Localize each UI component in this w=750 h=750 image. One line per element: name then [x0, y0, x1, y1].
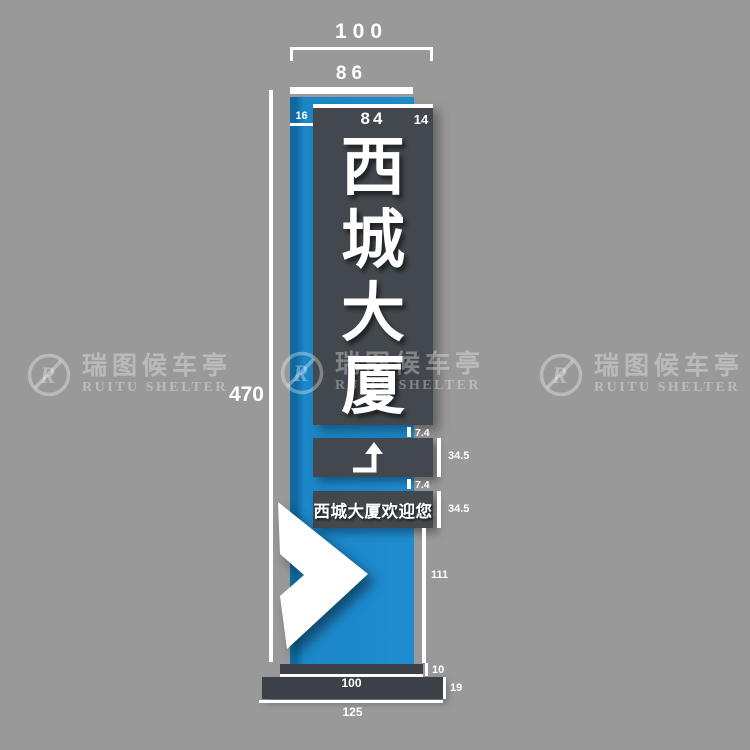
arrow-plaque: [313, 438, 433, 477]
pillar-cap-bar: [280, 664, 423, 674]
ruitu-logo-icon: R: [26, 352, 72, 398]
svg-text:R: R: [551, 363, 567, 388]
watermark: R 瑞图候车亭 RUITU SHELTER: [26, 352, 232, 398]
chevron-right-icon: [276, 494, 378, 656]
dim-label-lower-section-height: 111: [431, 569, 448, 581]
dim-label-welcome-plaque-height: 34.5: [448, 503, 469, 515]
dim-label-cap-height: 10: [432, 664, 444, 676]
title-char: 城: [341, 204, 405, 277]
watermark-en: RUITU SHELTER: [82, 380, 232, 396]
dim-label-base-width: 125: [262, 705, 443, 719]
watermark-text: 瑞图候车亭 RUITU SHELTER: [82, 354, 232, 396]
ruitu-logo-icon: R: [538, 352, 584, 398]
dim-label-cap-width: 100: [280, 676, 423, 690]
signage-design-canvas: 100 86 470 84 14 16 西 城 大 厦 7.4 34.5 7.4…: [0, 0, 750, 750]
title-char: 西: [341, 131, 405, 204]
ruitu-logo-icon: R: [279, 350, 325, 396]
dim-tick-gap-top: [407, 427, 411, 437]
dim-line-lower-section: [422, 528, 426, 663]
watermark-en: RUITU SHELTER: [594, 380, 744, 396]
dim-tick-cap-height: [425, 663, 428, 676]
dim-bracket-outer-width: [290, 47, 433, 61]
dim-tick-gap-bottom: [407, 479, 411, 489]
watermark-text: 瑞图候车亭 RUITU SHELTER: [335, 352, 485, 394]
dim-label-outer-width: 100: [290, 20, 433, 44]
watermark-en: RUITU SHELTER: [335, 378, 485, 394]
dim-line-total-height: [269, 90, 273, 662]
watermark-text: 瑞图候车亭 RUITU SHELTER: [594, 354, 744, 396]
dim-bar-welcome-plaque: [437, 491, 441, 528]
svg-text:R: R: [292, 361, 308, 386]
watermark-cn: 瑞图候车亭: [594, 354, 744, 380]
watermark-cn: 瑞图候车亭: [335, 352, 485, 378]
watermark: R 瑞图候车亭 RUITU SHELTER: [279, 350, 485, 396]
dim-bar-pillar-width: [290, 87, 413, 94]
dim-line-base-width: [259, 700, 443, 703]
dim-label-left-inset: 16: [290, 110, 313, 122]
dim-bar-arrow-plaque: [437, 438, 441, 477]
dim-label-right-overhang: 14: [408, 112, 434, 127]
dim-label-pillar-width: 86: [290, 63, 413, 85]
watermark-cn: 瑞图候车亭: [82, 354, 232, 380]
turn-up-arrow-icon: [313, 438, 433, 477]
dim-label-gap-bottom: 7.4: [415, 479, 430, 491]
svg-text:R: R: [39, 363, 55, 388]
dim-label-base-height: 19: [450, 682, 462, 694]
title-char: 大: [341, 277, 405, 350]
dim-label-arrow-plaque-height: 34.5: [448, 450, 469, 462]
dim-bar-left-inset: [290, 123, 313, 126]
dim-bar-base-height: [443, 677, 446, 699]
watermark: R 瑞图候车亭 RUITU SHELTER: [538, 352, 744, 398]
